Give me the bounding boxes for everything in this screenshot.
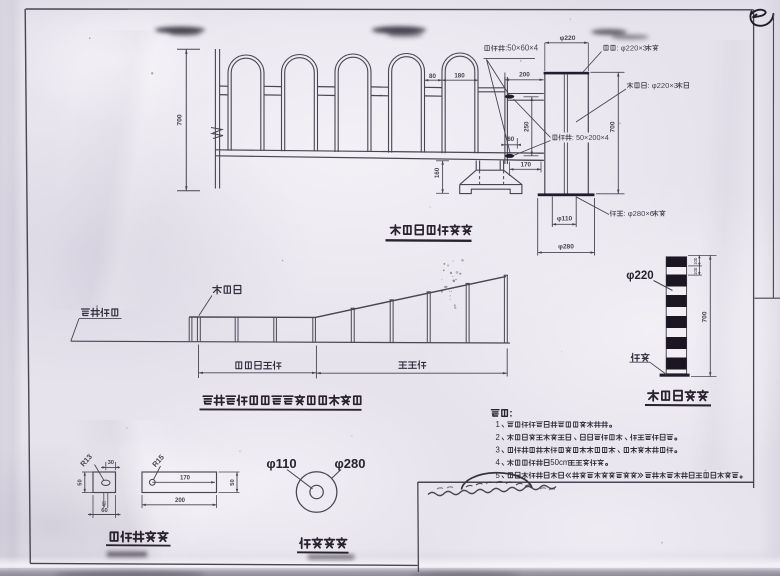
- svg-text:R15: R15: [150, 453, 166, 469]
- svg-text::50×60×4: :50×60×4: [505, 44, 539, 53]
- svg-text:50cm: 50cm: [550, 458, 569, 467]
- svg-text:50: 50: [230, 479, 236, 485]
- svg-text:40: 40: [102, 501, 108, 507]
- svg-text:: φ220×3: : φ220×3: [617, 43, 647, 52]
- svg-text:50: 50: [78, 479, 84, 485]
- svg-text:φ110: φ110: [557, 216, 573, 223]
- svg-text:200: 200: [519, 72, 530, 79]
- svg-text:φ220: φ220: [626, 270, 653, 282]
- svg-text:R13: R13: [78, 452, 94, 468]
- svg-text:: 50×200×4: : 50×200×4: [572, 133, 609, 142]
- svg-text:60: 60: [101, 508, 107, 514]
- svg-text:φ280: φ280: [558, 244, 574, 251]
- svg-text:φ110: φ110: [266, 456, 296, 471]
- svg-text:100: 100: [693, 257, 698, 265]
- svg-text:: φ220×3: : φ220×3: [648, 81, 678, 90]
- svg-text:170: 170: [180, 476, 191, 482]
- svg-text:80: 80: [429, 73, 436, 80]
- svg-text:180: 180: [454, 73, 465, 80]
- svg-text:700: 700: [177, 114, 184, 126]
- svg-text:φ220: φ220: [560, 35, 576, 42]
- svg-text:30: 30: [108, 460, 114, 466]
- svg-text:200: 200: [175, 498, 186, 504]
- svg-text:3: 3: [496, 446, 500, 455]
- svg-text:60: 60: [507, 136, 514, 143]
- svg-text:: φ280×6: : φ280×6: [624, 209, 654, 218]
- svg-text:2: 2: [496, 433, 500, 442]
- svg-text::: :: [509, 408, 512, 419]
- svg-text:φ280: φ280: [335, 456, 366, 471]
- svg-text:4: 4: [496, 458, 501, 467]
- svg-text:250: 250: [523, 121, 530, 132]
- svg-text:700: 700: [701, 311, 708, 322]
- svg-text:100: 100: [693, 267, 698, 275]
- svg-text:160: 160: [434, 167, 441, 178]
- svg-text:1: 1: [496, 420, 500, 429]
- svg-text:170: 170: [520, 161, 531, 168]
- svg-text:700: 700: [609, 121, 616, 132]
